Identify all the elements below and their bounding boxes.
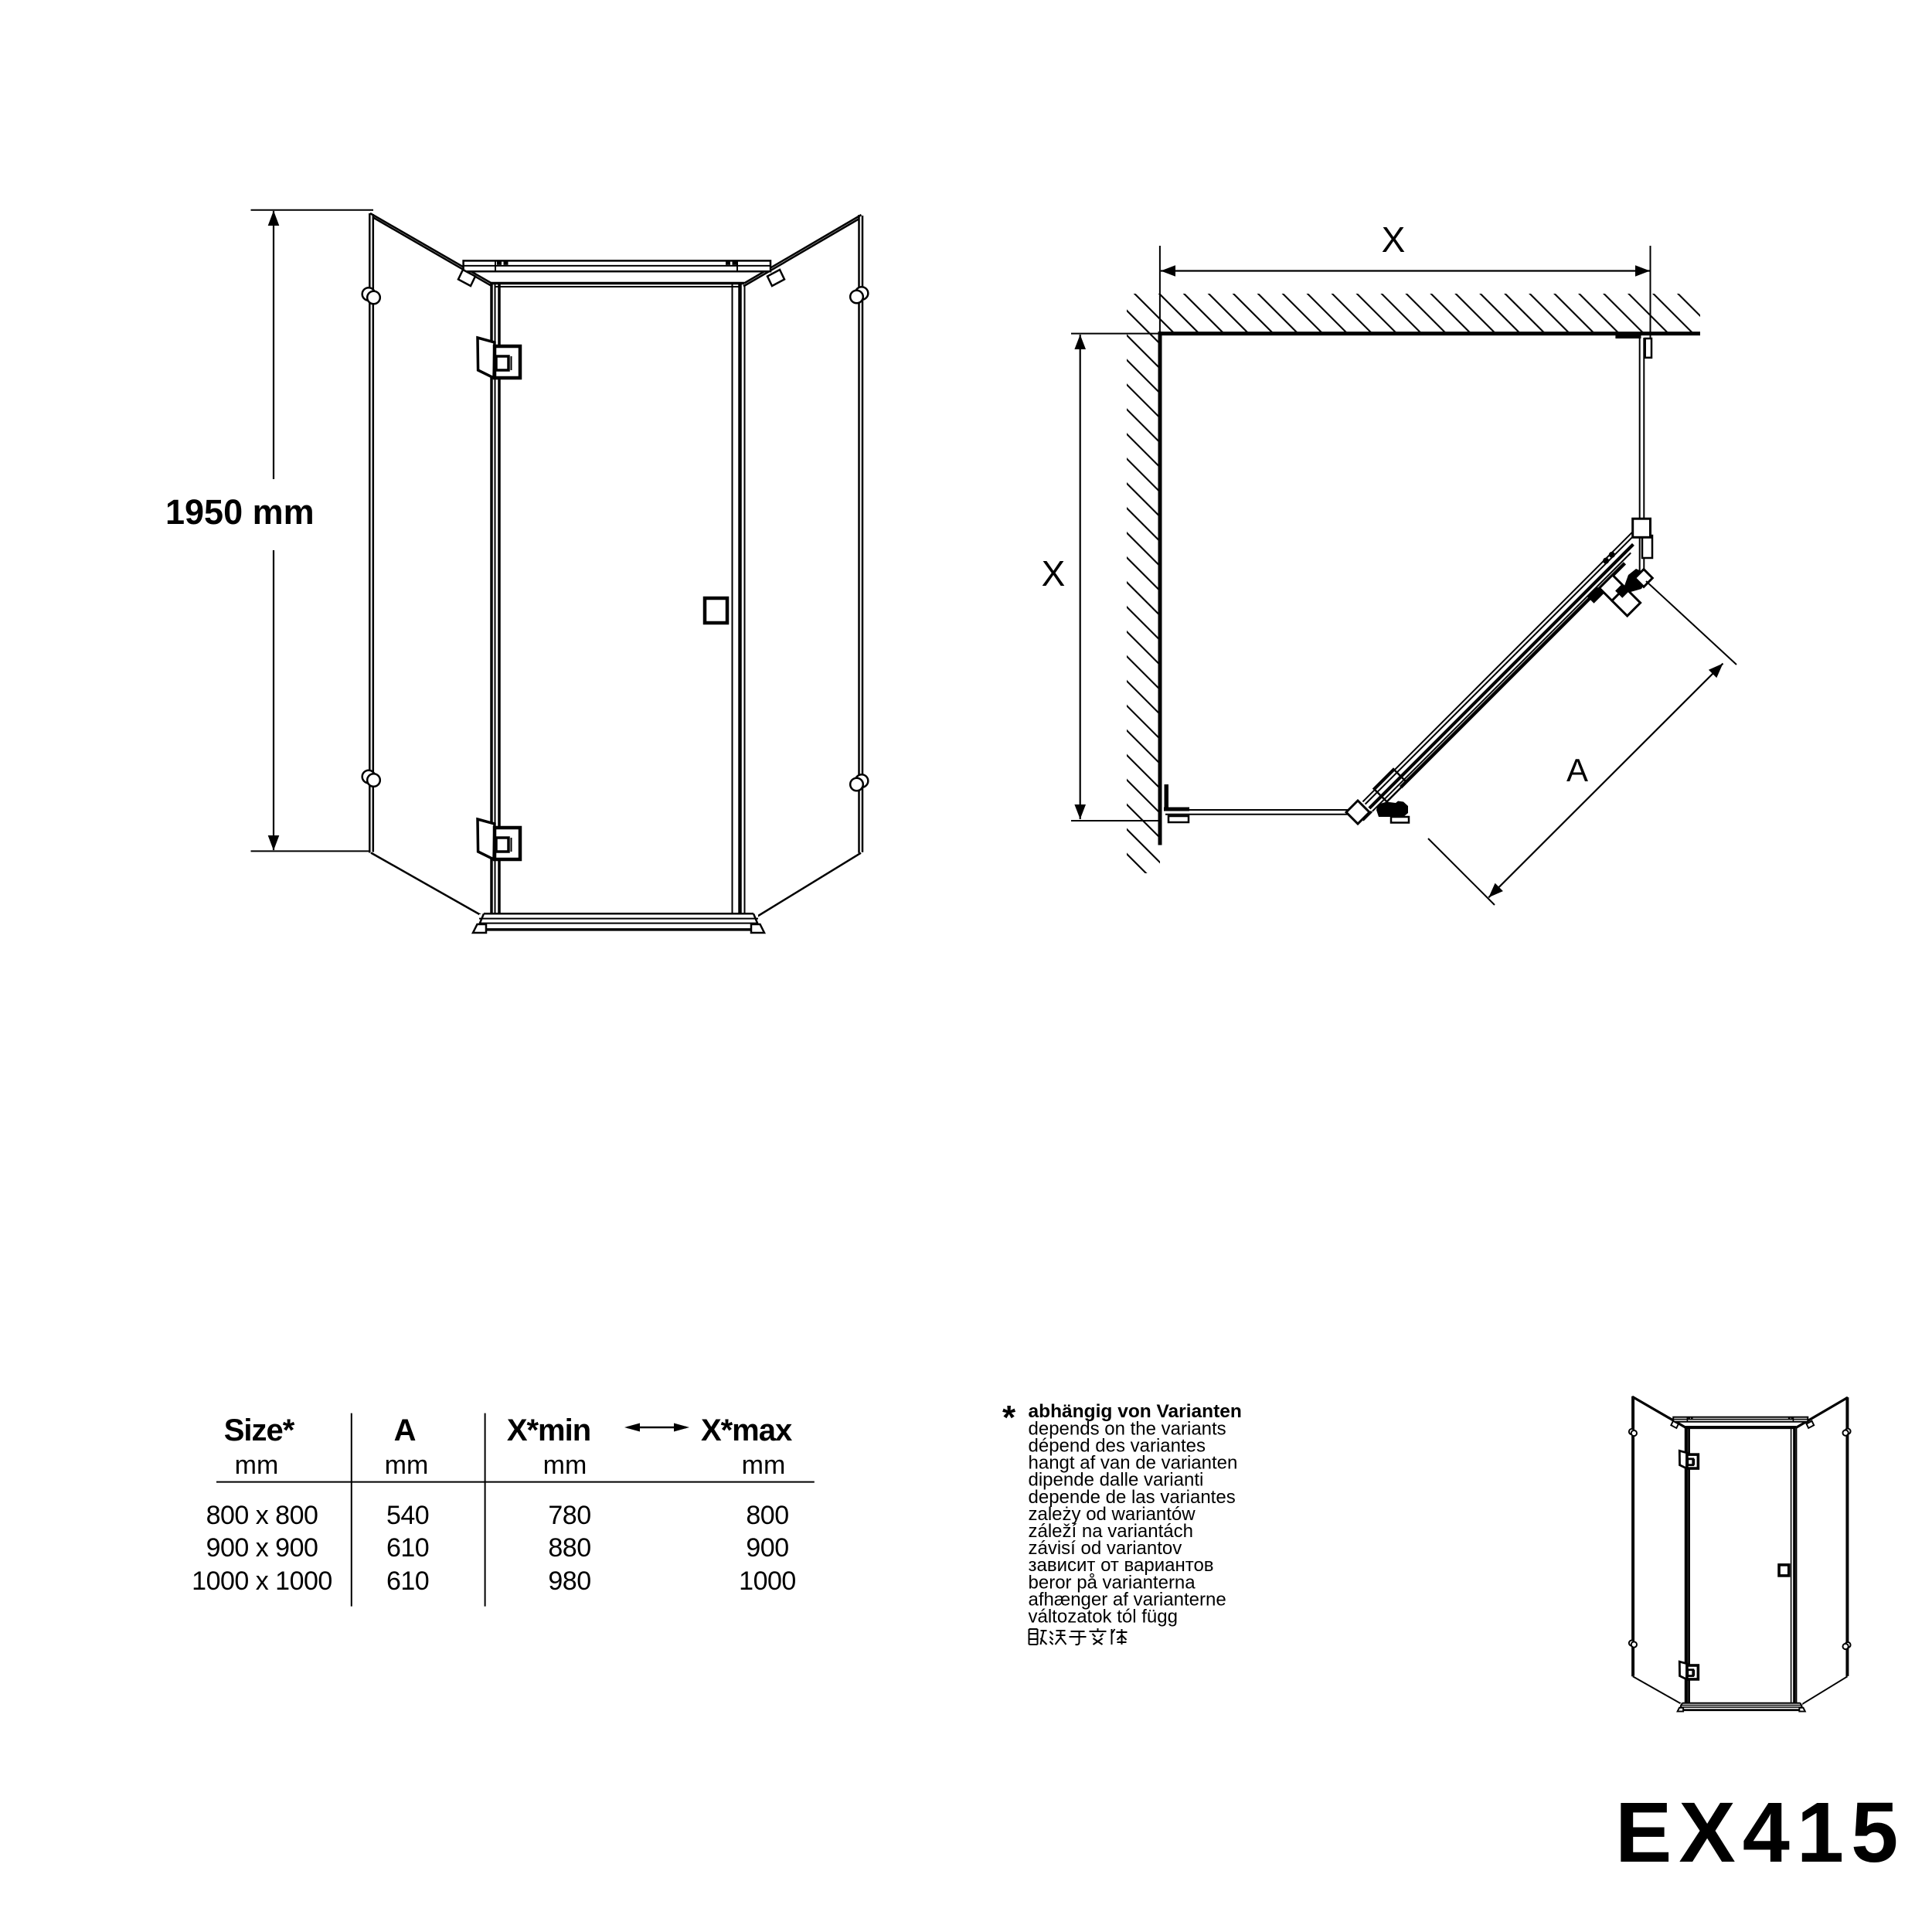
svg-text:mm: mm [543, 1451, 587, 1480]
svg-text:980: 980 [548, 1566, 590, 1596]
svg-text:X*max: X*max [701, 1413, 792, 1447]
svg-text:változatok tól függ: változatok tól függ [1029, 1607, 1178, 1628]
svg-text:540: 540 [386, 1501, 429, 1530]
svg-text:*: * [1002, 1399, 1016, 1437]
svg-text:1000 x 1000: 1000 x 1000 [192, 1566, 332, 1596]
svg-text:610: 610 [386, 1566, 429, 1596]
svg-text:A: A [1566, 752, 1588, 788]
svg-text:610: 610 [386, 1533, 429, 1563]
svg-text:1000: 1000 [739, 1566, 796, 1596]
svg-text:1950 mm: 1950 mm [165, 492, 315, 532]
svg-text:mm: mm [385, 1451, 429, 1480]
svg-text:X: X [1042, 553, 1066, 594]
svg-text:800 x 800: 800 x 800 [206, 1501, 318, 1530]
svg-text:mm: mm [235, 1451, 279, 1480]
svg-text:A: A [394, 1413, 416, 1447]
svg-text:900 x 900: 900 x 900 [206, 1533, 318, 1563]
svg-text:900: 900 [746, 1533, 788, 1563]
svg-text:EX415: EX415 [1615, 1785, 1905, 1880]
svg-text:780: 780 [548, 1501, 590, 1530]
svg-text:mm: mm [742, 1451, 786, 1480]
svg-text:X: X [1382, 219, 1406, 260]
svg-text:800: 800 [746, 1501, 788, 1530]
svg-text:Size*: Size* [224, 1413, 295, 1447]
svg-text:880: 880 [548, 1533, 590, 1563]
svg-text:X*min: X*min [507, 1413, 590, 1447]
